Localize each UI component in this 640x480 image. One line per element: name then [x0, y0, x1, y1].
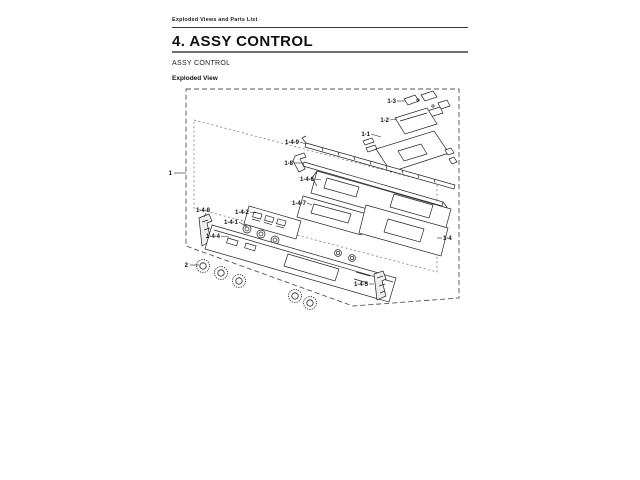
callout-1-4-2: 1-4-2: [235, 210, 250, 216]
callout-1: 1: [169, 171, 173, 177]
part-1-4-2-pcb: [244, 206, 301, 239]
callout-1-4-7: 1-4-7: [292, 201, 307, 207]
callout-1-4-4: 1-4-4: [206, 234, 221, 240]
callout-1-1: 1-1: [361, 132, 370, 138]
document-page: Exploded Views and Parts List 4. ASSY CO…: [0, 0, 640, 480]
exploded-view-diagram: 1 2 1-3 1-2 1-1 1-4-9 1-8 1-4-6 1-4-7 1-…: [0, 0, 640, 480]
callout-1-4-8: 1-4-8: [196, 208, 211, 214]
callout-1-4: 1-4: [443, 236, 452, 242]
callout-1-4-1: 1-4-1: [224, 220, 239, 226]
callout-1-4-6: 1-4-6: [300, 177, 315, 183]
callout-1-2: 1-2: [380, 118, 389, 124]
callout-1-4-5: 1-4-5: [354, 282, 369, 288]
callout-2: 2: [185, 263, 189, 269]
callout-1-4-9: 1-4-9: [285, 140, 300, 146]
callout-1-3: 1-3: [387, 99, 396, 105]
callout-1-8: 1-8: [284, 161, 293, 167]
